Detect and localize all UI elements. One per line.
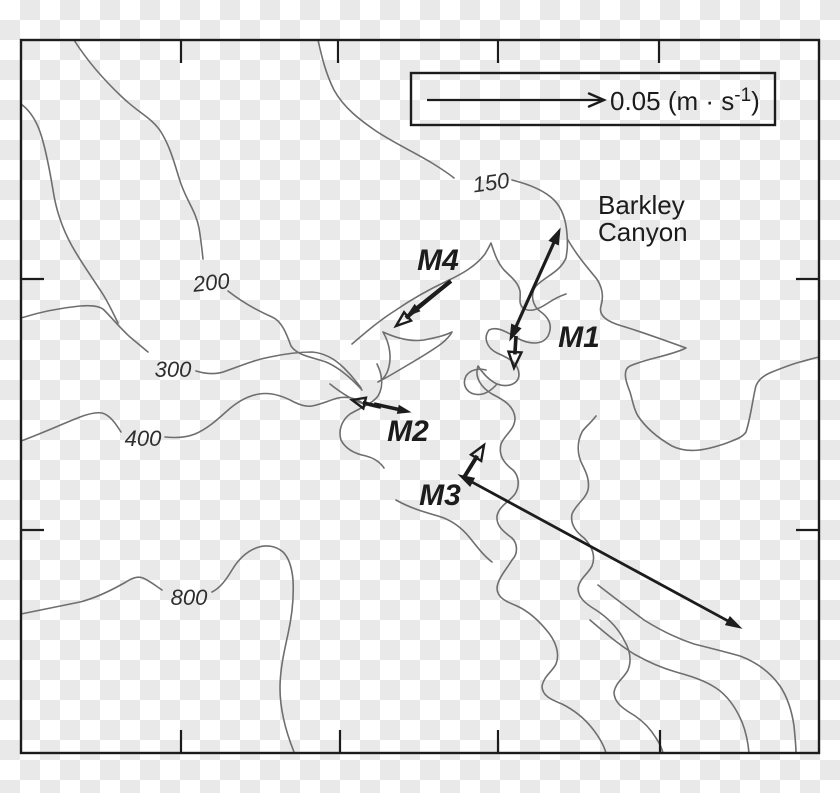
contour-line-300-west [21, 306, 148, 352]
place-label-line2: Canyon [598, 217, 688, 247]
current-vector-m3-2-head-open [471, 445, 484, 461]
contour-line-east-wall [572, 416, 663, 753]
mooring-label-m1: M1 [558, 321, 600, 354]
figure-canvas: 0.05 (m · s-1) 150 200 300 400 800 M1 M2… [0, 0, 840, 793]
legend-scale-arrow [427, 94, 604, 107]
current-vector-m2-2-head-filled [397, 405, 410, 413]
legend: 0.05 (m · s-1) [411, 73, 775, 125]
current-vector-m2-1-head-open [352, 398, 366, 409]
contour-label-150: 150 [471, 168, 512, 198]
current-vector-m1-1-shaft [515, 241, 555, 329]
legend-label-exponent: -1 [734, 85, 751, 106]
current-vector-m3-1-head-filled [726, 617, 741, 628]
map-labels: 150 200 300 400 800 M1 M2 M3 M4 Barkley … [125, 168, 688, 610]
contour-line-400-west [21, 413, 121, 441]
contour-line-800-east [212, 546, 294, 752]
contour-line-m2-spur [340, 364, 384, 468]
current-vector-m3-1-shaft [470, 481, 730, 622]
place-label-line1: Barkley [598, 190, 685, 220]
contour-label-300: 300 [155, 357, 192, 382]
legend-label-main: 0.05 (m · s [610, 86, 734, 116]
contour-line-m4-ridge-upper [352, 243, 566, 344]
legend-label-close: ) [751, 86, 760, 116]
contour-label-800: 800 [171, 585, 208, 610]
current-vector-m1-1-head-filled [549, 229, 560, 245]
mooring-label-m3: M3 [419, 479, 461, 512]
contour-label-400: 400 [125, 426, 162, 451]
current-vector-m3-2-shaft [463, 456, 477, 479]
contour-label-200: 200 [191, 268, 232, 297]
bathymetry-contours [21, 40, 819, 753]
current-vector-m4-2-shaft [406, 284, 447, 318]
contour-line-400-east [165, 393, 364, 437]
contour-line-bottom-right-2 [590, 620, 749, 753]
mooring-label-m2: M2 [387, 415, 429, 448]
contour-line-m4-lens [378, 332, 452, 382]
contour-line-800-west [21, 577, 162, 614]
contour-line-200-east [228, 291, 362, 390]
contour-line-east-rim-meander [568, 240, 819, 450]
contour-line-nw-diagonal-200-west [74, 40, 203, 259]
mooring-label-m4: M4 [417, 244, 459, 277]
map-figure: 0.05 (m · s-1) 150 200 300 400 800 M1 M2… [0, 0, 840, 793]
legend-label: 0.05 (m · s-1) [610, 85, 760, 116]
contour-line-left-upper [21, 104, 118, 323]
contour-line-300-east [196, 352, 361, 388]
